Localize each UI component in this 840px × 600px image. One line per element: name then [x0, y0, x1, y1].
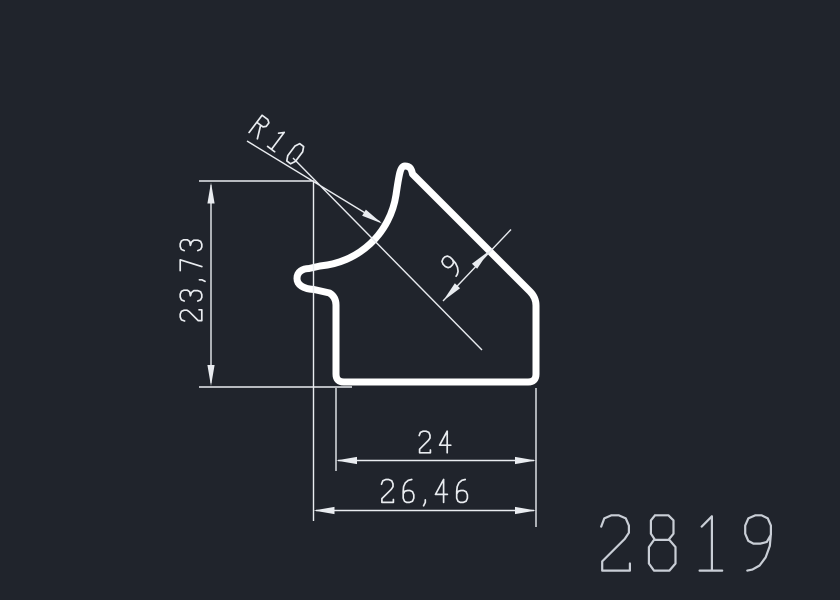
arrow-width-inner-left-icon — [336, 457, 357, 464]
arrow-height-bottom-icon — [207, 365, 214, 386]
dimension-arrowheads — [207, 183, 536, 515]
part-number-text — [601, 515, 771, 570]
dimension-text-width_overall — [382, 480, 468, 506]
arrow-width-overall-left-icon — [314, 507, 335, 514]
profile-drawing — [0, 0, 840, 600]
arrow-radius-leader-icon — [362, 210, 384, 227]
arrow-height-top-icon — [207, 183, 214, 204]
dimension-lines — [211, 141, 534, 511]
cad-canvas — [0, 0, 840, 600]
dimension-text-radius — [249, 115, 305, 165]
dimension-text-wall_thickness — [440, 254, 462, 276]
radius-axis-line — [293, 158, 482, 350]
dimension-text-width_inner — [419, 431, 451, 453]
arrow-width-inner-right-icon — [515, 457, 536, 464]
arrow-width-overall-right-icon — [515, 507, 536, 514]
dimension-text-height — [180, 240, 205, 321]
